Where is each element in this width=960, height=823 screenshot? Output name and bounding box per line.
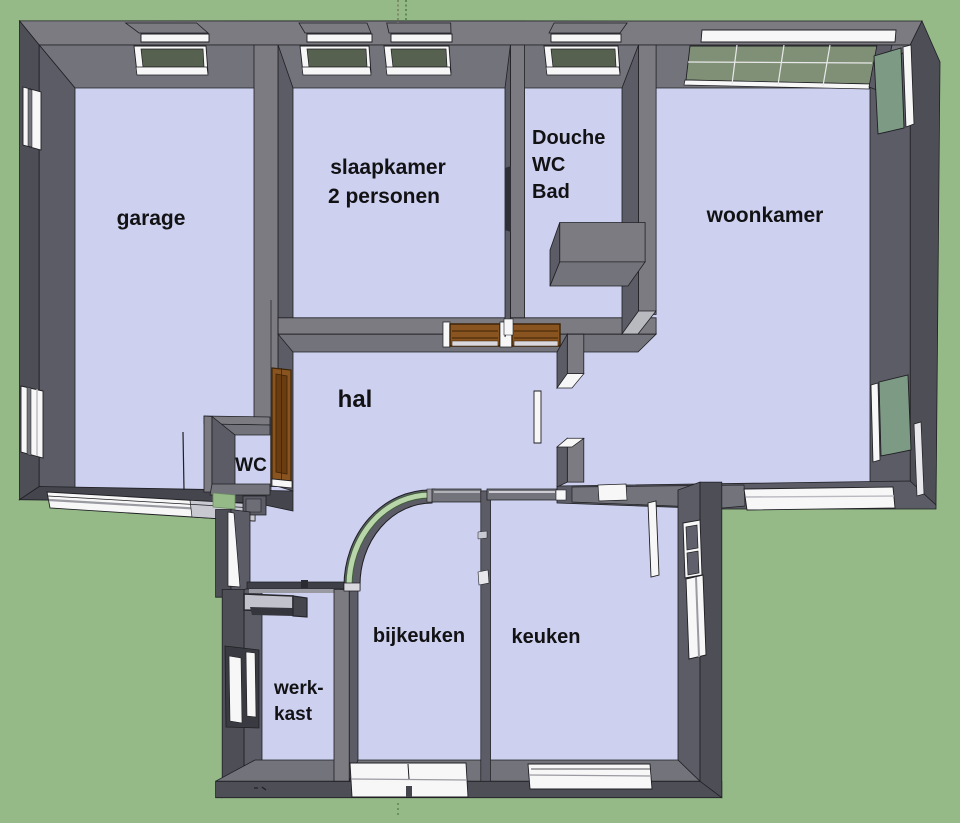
svg-text:bijkeuken: bijkeuken xyxy=(373,625,465,647)
svg-text:Bad: Bad xyxy=(532,181,570,203)
svg-text:woonkamer: woonkamer xyxy=(706,204,824,227)
svg-text:werk-: werk- xyxy=(273,678,324,699)
svg-text:slaapkamer: slaapkamer xyxy=(330,156,446,179)
svg-text:hal: hal xyxy=(338,386,373,413)
svg-text:keuken: keuken xyxy=(512,626,581,648)
svg-text:kast: kast xyxy=(274,704,313,725)
svg-text:WC: WC xyxy=(532,154,565,176)
svg-text:2 personen: 2 personen xyxy=(328,185,440,208)
svg-text:WC: WC xyxy=(235,455,267,476)
svg-text:garage: garage xyxy=(117,207,186,230)
svg-text:Douche: Douche xyxy=(532,127,605,149)
